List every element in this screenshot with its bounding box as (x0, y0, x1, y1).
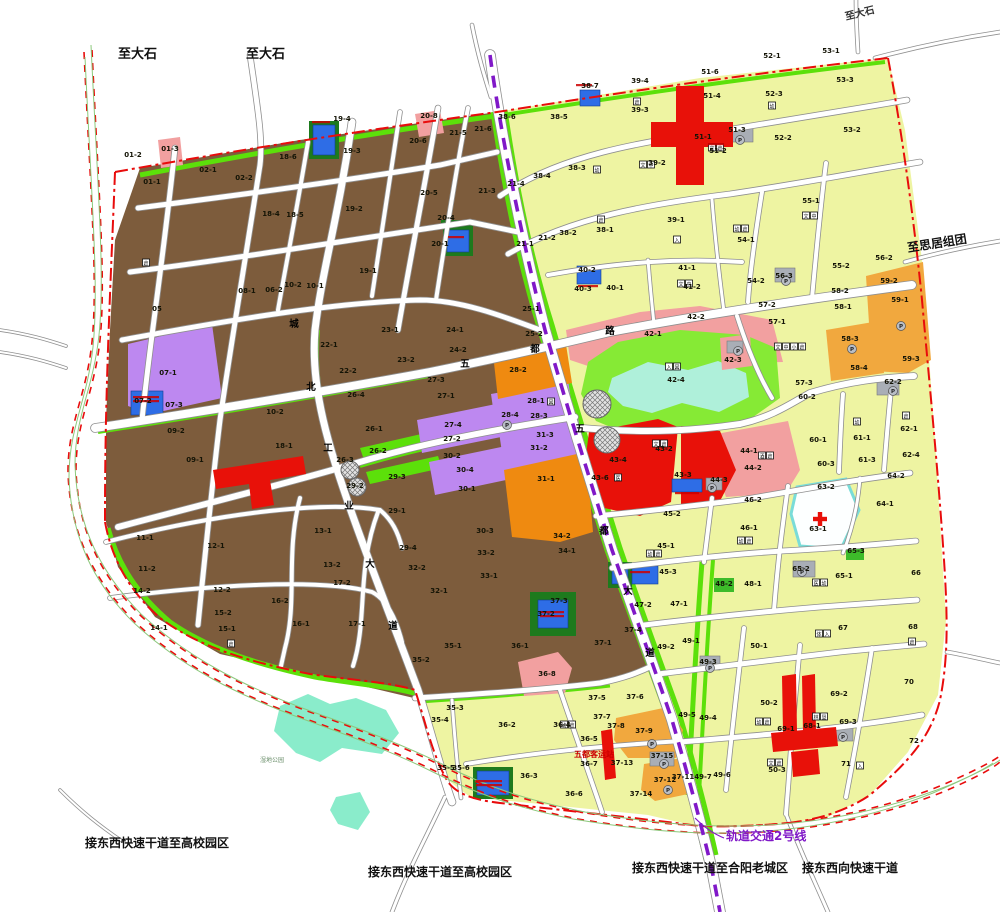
parcel-label: 56-2 (875, 254, 893, 262)
parcel-label: 27-4 (444, 421, 462, 429)
parcel-label: 45-2 (663, 510, 681, 518)
parcel-label: 52-3 (765, 90, 783, 98)
parking-icon-letter: P (850, 347, 854, 353)
parcel-label: 11-1 (136, 534, 154, 542)
parcel-label: 18-4 (262, 210, 280, 218)
parcel-label: 30-4 (456, 466, 474, 474)
parcel-label: 52-1 (763, 52, 781, 60)
parcel-label: 40-1 (606, 284, 624, 292)
red-cross-commercial (782, 674, 797, 732)
parcel-label: 47-2 (634, 601, 652, 609)
facility-icon-glyph: 垦 (821, 714, 826, 721)
parcel-label: 57-1 (768, 318, 786, 326)
tiny-red-annotation (675, 492, 699, 494)
parcel-label: 21-5 (449, 129, 467, 137)
facility-icon-glyph: 倉 (228, 641, 233, 648)
parcel-label: 39-2 (648, 159, 666, 167)
facility-icon-glyph: 幼 (769, 103, 774, 110)
parcel-label: 26-2 (369, 447, 387, 455)
parcel-label: 51-6 (701, 68, 719, 76)
facility-icon-glyph: 倉 (764, 719, 769, 726)
parcel-label: 29-3 (388, 473, 406, 481)
parcel-label: 35-2 (412, 656, 430, 664)
parcel-label: 22-1 (320, 341, 338, 349)
parcel-label: 02-2 (235, 174, 253, 182)
road-name-char: 大 (365, 558, 375, 570)
parcel-label: 12-2 (213, 586, 231, 594)
parcel-label: 13-1 (314, 527, 332, 535)
parcel-label: 47-1 (670, 600, 688, 608)
parcel-label: 54-1 (737, 236, 755, 244)
parcel-label: 21-4 (507, 180, 525, 188)
parcel-label: 58-1 (834, 303, 852, 311)
parcel-label: 17-2 (333, 579, 351, 587)
parcel-label: 67 (838, 624, 848, 632)
parcel-label: 17-1 (348, 620, 366, 628)
parcel-label: 50-3 (768, 766, 786, 774)
parcel-label: 28-2 (509, 366, 527, 374)
parcel-label: 65-3 (847, 547, 865, 555)
parcel-label: 20-8 (420, 112, 438, 120)
parcel-label: 34-1 (558, 547, 576, 555)
facility-icon-glyph: 幼 (756, 719, 761, 726)
parcel-label: 53-1 (822, 47, 840, 55)
parcel-label: 60-3 (817, 460, 835, 468)
parcel-label: 36-4 (553, 721, 571, 729)
parcel-label: 38-7 (581, 82, 599, 90)
facility-icon-glyph: 幼 (647, 551, 652, 558)
parcel-label: 37-4 (624, 626, 642, 634)
facility-icon-glyph: 文 (803, 213, 808, 220)
tiny-red-annotation (448, 236, 464, 238)
parcel-label: 36-6 (565, 790, 583, 798)
parcel-label: 19-3 (343, 147, 361, 155)
parcel-label: 58-4 (850, 364, 868, 372)
parcel-label: 16-1 (292, 620, 310, 628)
parcel-label: 61-1 (853, 434, 871, 442)
facility-icon-glyph: 入 (857, 764, 862, 770)
facility-icon-glyph: 入 (674, 238, 679, 244)
parcel-label: 54-2 (747, 277, 765, 285)
facility-icon-glyph: 倉 (598, 217, 603, 224)
parcel-label: 35-3 (446, 704, 464, 712)
parcel-label: 48-1 (744, 580, 762, 588)
facility-icon-glyph: 倉 (655, 551, 660, 558)
parcel-label: 22-2 (339, 367, 357, 375)
facility-icon-glyph: 倉 (767, 453, 772, 460)
parcel-label: 15-2 (214, 609, 232, 617)
road-name-char: 都 (598, 525, 609, 537)
parcel-label: 68-1 (803, 722, 821, 730)
facility-icon-glyph: 中 (811, 213, 816, 220)
facility-icon-glyph: 入 (824, 632, 829, 638)
parcel-label: 42-3 (724, 356, 742, 364)
parcel-label: 09-1 (186, 456, 204, 464)
parcel-label: 19-4 (333, 115, 351, 123)
parcel-label: 15-1 (218, 625, 236, 633)
parking-icon-letter: P (708, 666, 712, 672)
metro-station-marker (594, 427, 620, 453)
parcel-label: 37-9 (635, 727, 653, 735)
facility-icon-glyph: 幼 (821, 580, 826, 587)
road-name-char: 北 (306, 381, 316, 393)
parcel-label: 33-1 (480, 572, 498, 580)
facility-icon-glyph: 中 (783, 344, 788, 351)
parcel-label: 35-1 (444, 642, 462, 650)
parcel-label: 66 (911, 569, 921, 577)
parcel-label: 43-3 (674, 471, 692, 479)
blue-public-parcel (313, 125, 335, 155)
facility-icon-glyph: 幼 (738, 538, 743, 545)
parcel-label: 27-2 (443, 435, 461, 443)
parcel-label: 20-1 (431, 240, 449, 248)
parcel-label: 39-3 (631, 106, 649, 114)
parcel-label: 37-13 (611, 759, 634, 767)
road-name-char: 道 (388, 620, 398, 632)
parcel-label: 39-4 (631, 77, 649, 85)
parcel-label: 30-3 (476, 527, 494, 535)
map-exit-label: 接东西快速干道至高校园区 (85, 835, 229, 850)
parcel-label: 28-1 (527, 397, 545, 405)
parcel-label: 55-2 (832, 262, 850, 270)
parcel-label: 58-2 (831, 287, 849, 295)
parcel-label: 05 (152, 305, 162, 313)
parcel-label: 49-2 (657, 643, 675, 651)
parcel-label: 41-1 (678, 264, 696, 272)
parcel-label: 36-5 (580, 735, 598, 743)
parcel-label: 37-3 (550, 597, 568, 605)
parking-icon-letter: P (899, 324, 903, 330)
road-name-char: 大 (623, 585, 633, 597)
parcel-label: 23-1 (381, 326, 399, 334)
road-name-char: 工 (323, 443, 333, 454)
facility-icon-glyph: 倉 (746, 538, 751, 545)
parcel-label: 21-2 (538, 234, 556, 242)
facility-icon-glyph: 倉 (634, 99, 639, 106)
parcel-label: 01-3 (161, 145, 179, 153)
parcel-label: 44-2 (744, 464, 762, 472)
parking-icon-letter: P (736, 349, 740, 355)
parcel-label: 18-1 (275, 442, 293, 450)
parcel-label: 34-2 (553, 532, 571, 540)
facility-icon-glyph: 倉 (909, 639, 914, 646)
parcel-label: 31-2 (530, 444, 548, 452)
red-cross-commercial (791, 749, 820, 777)
parcel-label: 07-2 (134, 397, 152, 405)
plan-map-canvas: 幼倉文中倉入文倉幼幼倉文中文中文中小倉幼倉酒倉幼倉幼倉医幼体入倉入文倉幼倉林垦図… (0, 0, 1000, 912)
road (947, 652, 1000, 663)
parcel-label: 42-2 (687, 313, 705, 321)
metro-station-marker (583, 390, 611, 418)
parcel-label: 49-1 (682, 637, 700, 645)
facility-icon-glyph: 小 (791, 344, 796, 351)
map-exit-label: 接东西快速干道至合阳老城区 (632, 860, 788, 875)
parking-icon-letter: P (505, 423, 509, 429)
parcel-label: 56-3 (775, 272, 793, 280)
parcel-label: 64-1 (876, 500, 894, 508)
parcel-label: 27-1 (437, 392, 455, 400)
parcel-label: 11-2 (138, 565, 156, 573)
parcel-label: 59-1 (891, 296, 909, 304)
wetland-lake (330, 792, 370, 830)
parcel-label: 45-3 (659, 568, 677, 576)
parcel-label: 61-3 (858, 456, 876, 464)
parcel-label: 55-1 (802, 197, 820, 205)
parking-icon-letter: P (710, 486, 714, 492)
facility-icon-glyph: 文 (640, 162, 645, 169)
facility-icon-glyph: 酒 (759, 453, 764, 460)
parcel-label: 07-1 (159, 369, 177, 377)
parcel-label: 20-5 (420, 189, 438, 197)
parcel-label: 45-1 (657, 542, 675, 550)
parcel-label: 01-1 (143, 178, 161, 186)
tiny-red-annotation (312, 121, 330, 123)
parcel-label: 19-2 (345, 205, 363, 213)
parcel-label: 21-6 (474, 125, 492, 133)
parcel-label: 69-1 (777, 725, 795, 733)
parcel-label: 24-1 (446, 326, 464, 334)
parcel-label: 09-2 (167, 427, 185, 435)
parcel-label: 31-3 (536, 431, 554, 439)
parcel-label: 38-1 (596, 226, 614, 234)
hospital-cross-icon (818, 512, 822, 526)
bus-station-label: 五都客运站 (574, 749, 614, 759)
parcel-label: 44-1 (740, 447, 758, 455)
parcel-label: 07-3 (165, 401, 183, 409)
parcel-label: 37-2 (537, 610, 555, 618)
parcel-label: 37-1 (594, 639, 612, 647)
parcel-label: 24-2 (449, 346, 467, 354)
road-name-char: 道 (645, 647, 655, 659)
parcel-label: 69-2 (830, 690, 848, 698)
parcel-label: 06-2 (265, 286, 283, 294)
parcel-label: 60-1 (809, 436, 827, 444)
parcel-label: 26-1 (365, 425, 383, 433)
road-name-char: 路 (605, 325, 615, 337)
tiny-red-annotation (476, 784, 502, 786)
parcel-label: 10-1 (306, 282, 324, 290)
tiny-red-annotation (630, 571, 650, 573)
parcel-label: 29-4 (399, 544, 417, 552)
parcel-label: 69-3 (839, 718, 857, 726)
parcel-label: 19-1 (359, 267, 377, 275)
parcel-label: 64-2 (887, 472, 905, 480)
parcel-label: 25-2 (525, 330, 543, 338)
parcel-label: 36-7 (580, 760, 598, 768)
parcel-label: 57-3 (795, 379, 813, 387)
parcel-label: 18-5 (286, 211, 304, 219)
parcel-label: 25-1 (522, 305, 540, 313)
parcel-label: 40-3 (574, 285, 592, 293)
parcel-label: 36-3 (520, 772, 538, 780)
parcel-label: 26-3 (336, 456, 354, 464)
parcel-label: 43-2 (655, 445, 673, 453)
road-name-char: 城 (289, 318, 299, 330)
parcel-label: 40-2 (578, 266, 596, 274)
parcel-label: 43-6 (591, 474, 609, 482)
parcel-label: 01-2 (124, 151, 142, 159)
parcel-label: 44-3 (710, 476, 728, 484)
facility-icon-glyph: 林 (813, 714, 818, 721)
parcel-label: 14-2 (133, 587, 151, 595)
map-exit-label: 接东西快速干道至高校园区 (368, 864, 512, 879)
parcel-label: 59-3 (902, 355, 920, 363)
parking-icon-letter: P (891, 389, 895, 395)
parcel-label: 63-2 (817, 483, 835, 491)
map-exit-label: 接东西向快速干道 (802, 860, 898, 875)
parcel-label: 57-2 (758, 301, 776, 309)
parcel-label: 28-4 (501, 411, 519, 419)
facility-icon-glyph: 体 (816, 631, 821, 638)
facility-icon-glyph: 医 (813, 581, 818, 587)
parcel-label: 46-1 (740, 524, 758, 532)
parcel-label: 60-2 (798, 393, 816, 401)
facility-icon-glyph: 入 (666, 365, 671, 371)
parcel-label: 29-1 (388, 507, 406, 515)
parcel-label: 49-3 (699, 658, 717, 666)
tiny-red-annotation (476, 780, 502, 782)
parcel-label: 50-1 (750, 642, 768, 650)
map-exit-label: 至大石 (844, 3, 876, 23)
parcel-label: 33-2 (477, 549, 495, 557)
parcel-label: 12-1 (207, 542, 225, 550)
parcel-label: 49-7 (694, 773, 712, 781)
parcel-label: 62-4 (902, 451, 920, 459)
parking-icon-letter: P (650, 742, 654, 748)
parcel-label: 35-6 (452, 764, 470, 772)
parcel-label: 10-2 (284, 281, 302, 289)
parcel-label: 63-1 (809, 525, 827, 533)
parcel-label: 23-2 (397, 356, 415, 364)
parcel-label: 18-6 (279, 153, 297, 161)
parcel-label: 65-1 (835, 572, 853, 580)
parcel-label: 21-3 (478, 187, 496, 195)
facility-icon-glyph: 文 (775, 344, 780, 351)
parking-icon-letter: P (841, 735, 845, 741)
parcel-label: 70 (904, 678, 914, 686)
parcel-label: 29-2 (346, 482, 364, 490)
parcel-label: 51-2 (709, 147, 727, 155)
blue-public-parcel (672, 479, 702, 492)
parcel-label: 51-4 (703, 92, 721, 100)
facility-icon-glyph: 倉 (742, 226, 747, 233)
parcel-label: 42-1 (644, 330, 662, 338)
facility-icon-glyph: 図 (674, 365, 679, 371)
parcel-label: 14-1 (150, 624, 168, 632)
parcel-label: 38-6 (498, 113, 516, 121)
parcel-label: 28-3 (530, 412, 548, 420)
road-name-char: 都 (529, 343, 540, 355)
parcel-label: 43-4 (609, 456, 627, 464)
parking-icon-letter: P (738, 138, 742, 144)
map-exit-label: 至大石 (246, 46, 285, 62)
facility-icon-glyph: 図 (548, 400, 553, 406)
parcel-label: 38-4 (533, 172, 551, 180)
parcel-label: 37-6 (626, 693, 644, 701)
parcel-label: 16-2 (271, 597, 289, 605)
parcel-label: 50-2 (760, 699, 778, 707)
tiny-red-annotation (708, 143, 724, 145)
facility-icon-glyph: 倉 (143, 260, 148, 267)
parcel-label: 21-1 (516, 240, 534, 248)
parcel-label: 36-8 (538, 670, 556, 678)
parcel-label: 13-2 (323, 561, 341, 569)
parcel-label: 58-3 (841, 335, 859, 343)
parcel-label: 72 (909, 737, 919, 745)
parcel-label: 35-4 (431, 716, 449, 724)
parcel-label: 38-2 (559, 229, 577, 237)
parcel-label: 26-4 (347, 391, 365, 399)
parcel-label: 02-1 (199, 166, 217, 174)
road-name-char: 业 (344, 500, 354, 512)
parcel-label: 51-3 (728, 126, 746, 134)
parcel-label: 39-1 (667, 216, 685, 224)
facility-icon-glyph: 医 (615, 476, 620, 482)
rail-line-label: 轨道交通2号线 (726, 828, 806, 843)
parcel-label: 37-5 (588, 694, 606, 702)
parcel-label: 37-15 (651, 752, 674, 760)
parcel-label: 49-5 (678, 711, 696, 719)
parking-icon-letter: P (666, 788, 670, 794)
map-exit-label: 至大石 (118, 46, 157, 62)
parcel-label: 48-2 (715, 580, 733, 588)
parcel-label: 27-3 (427, 376, 445, 384)
facility-icon-glyph: 倉 (799, 344, 804, 351)
parcel-label: 30-1 (458, 485, 476, 493)
parcel-label: 49-6 (713, 771, 731, 779)
parcel-label: 20-4 (437, 214, 455, 222)
road-name-char: 五 (575, 424, 585, 435)
parcel-label: 53-2 (843, 126, 861, 134)
parcel-label: 51-1 (694, 133, 712, 141)
parcel-label: 68 (908, 623, 918, 631)
parcel-label: 37-7 (593, 713, 611, 721)
parcel-label: 52-2 (774, 134, 792, 142)
road (392, 797, 445, 912)
parcel-label: 32-2 (408, 564, 426, 572)
facility-icon-glyph: 幼 (734, 226, 739, 233)
zoning-map-svg: 幼倉文中倉入文倉幼幼倉文中文中文中小倉幼倉酒倉幼倉幼倉医幼体入倉入文倉幼倉林垦図… (0, 0, 1000, 912)
parcel-label: 30-2 (443, 452, 461, 460)
parcel-label: 37-11 (672, 773, 695, 781)
parcel-label: 46-2 (744, 496, 762, 504)
parcel-label: 53-3 (836, 76, 854, 84)
parcel-label: 32-1 (430, 587, 448, 595)
parcel-label: 71 (841, 760, 851, 768)
parcel-label: 59-2 (880, 277, 898, 285)
orange-parcel (866, 262, 931, 373)
parcel-label: 36-2 (498, 721, 516, 729)
road (60, 790, 122, 841)
parcel-label: 10-2 (266, 408, 284, 416)
parking-icon-letter: P (784, 279, 788, 285)
parcel-label: 62-1 (900, 425, 918, 433)
parcel-label: 41-2 (683, 283, 701, 291)
road-name-char: 五 (460, 359, 470, 370)
parcel-label: 37-14 (630, 790, 653, 798)
facility-icon-glyph: 幼 (594, 167, 599, 174)
blue-public-parcel (632, 566, 658, 584)
wetland-label: 湿地公园 (260, 756, 284, 764)
parcel-label: 42-4 (667, 376, 685, 384)
parcel-label: 08-1 (238, 287, 256, 295)
parcel-label: 36-1 (511, 642, 529, 650)
facility-icon-glyph: 倉 (903, 413, 908, 420)
parcel-label: 38-3 (568, 164, 586, 172)
blue-public-parcel (447, 230, 469, 252)
parcel-label: 31-1 (537, 475, 555, 483)
parcel-label: 62-2 (884, 378, 902, 386)
